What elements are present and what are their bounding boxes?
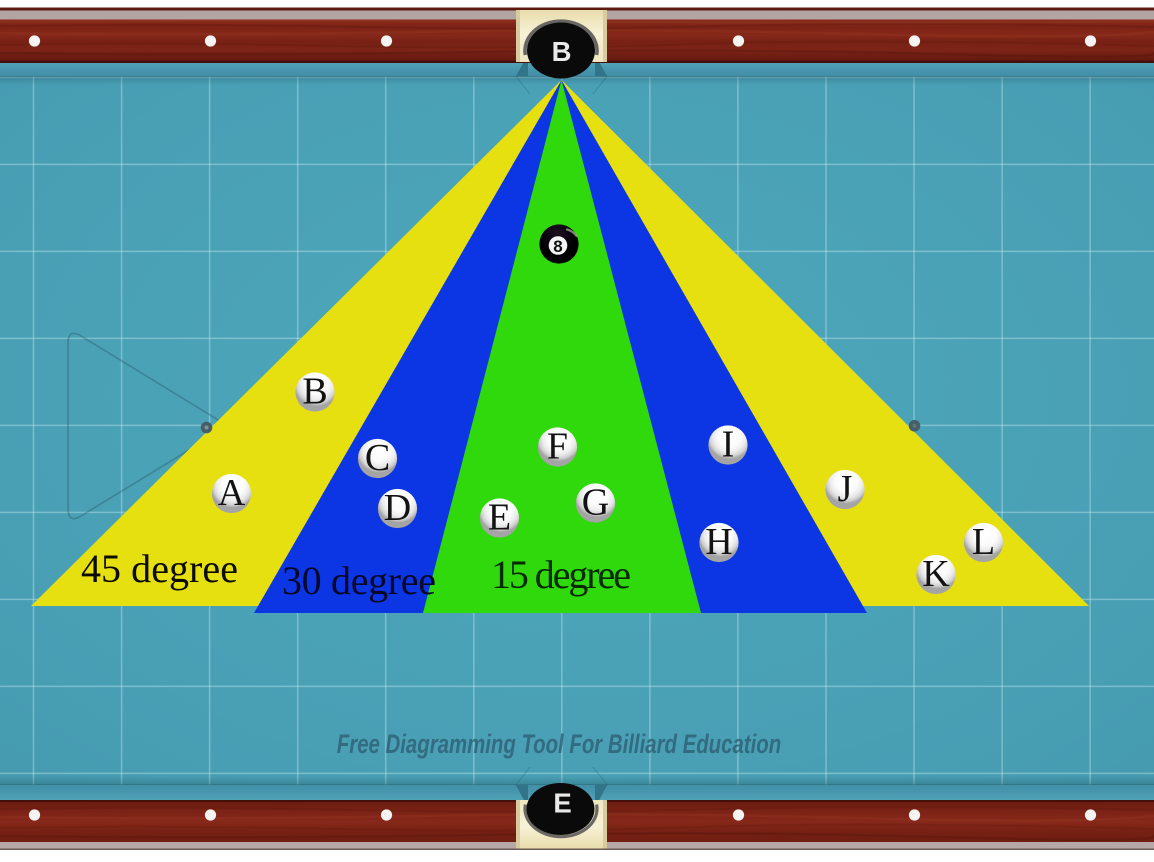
svg-text:45 degree: 45 degree xyxy=(81,546,238,591)
svg-text:I: I xyxy=(722,424,735,466)
svg-text:L: L xyxy=(972,521,995,563)
svg-text:J: J xyxy=(838,468,853,510)
svg-text:15 degree: 15 degree xyxy=(491,552,631,597)
svg-text:30 degree: 30 degree xyxy=(282,558,436,603)
svg-text:F: F xyxy=(547,426,568,468)
svg-text:B: B xyxy=(552,36,572,67)
svg-text:C: C xyxy=(365,437,390,479)
svg-text:Free Diagramming Tool For Bill: Free Diagramming Tool For Billiard Educa… xyxy=(337,731,781,760)
svg-text:H: H xyxy=(705,521,732,563)
svg-text:8: 8 xyxy=(553,237,562,256)
svg-text:E: E xyxy=(488,497,511,539)
svg-text:K: K xyxy=(922,553,950,595)
svg-text:B: B xyxy=(302,371,327,413)
svg-text:A: A xyxy=(218,472,246,514)
svg-text:G: G xyxy=(582,482,609,524)
svg-text:D: D xyxy=(384,487,411,529)
svg-text:E: E xyxy=(553,788,571,819)
